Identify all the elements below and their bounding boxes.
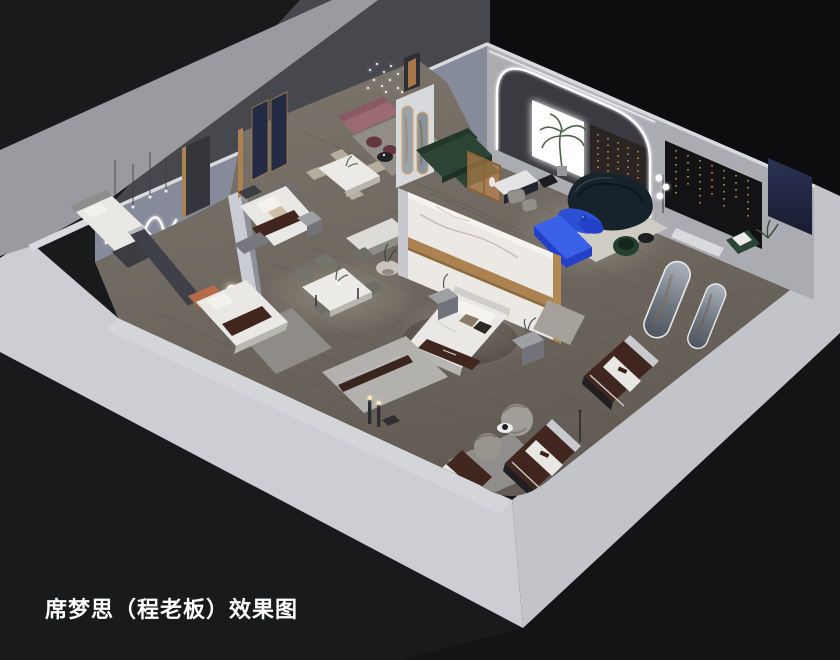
gold-frame-strip [238,128,243,198]
plum-ottoman-1 [366,137,382,148]
arched-mirror-partition [396,84,434,188]
plant-pot [557,166,567,176]
caption: 席梦思（程老板）效果图 [45,592,298,624]
doorframe-gold [182,146,186,218]
doorway-dark [186,135,210,216]
black-round-table [377,152,393,162]
rendering-page: 席梦思（程老板）效果图 [0,0,840,660]
rendering-canvas [0,0,840,660]
